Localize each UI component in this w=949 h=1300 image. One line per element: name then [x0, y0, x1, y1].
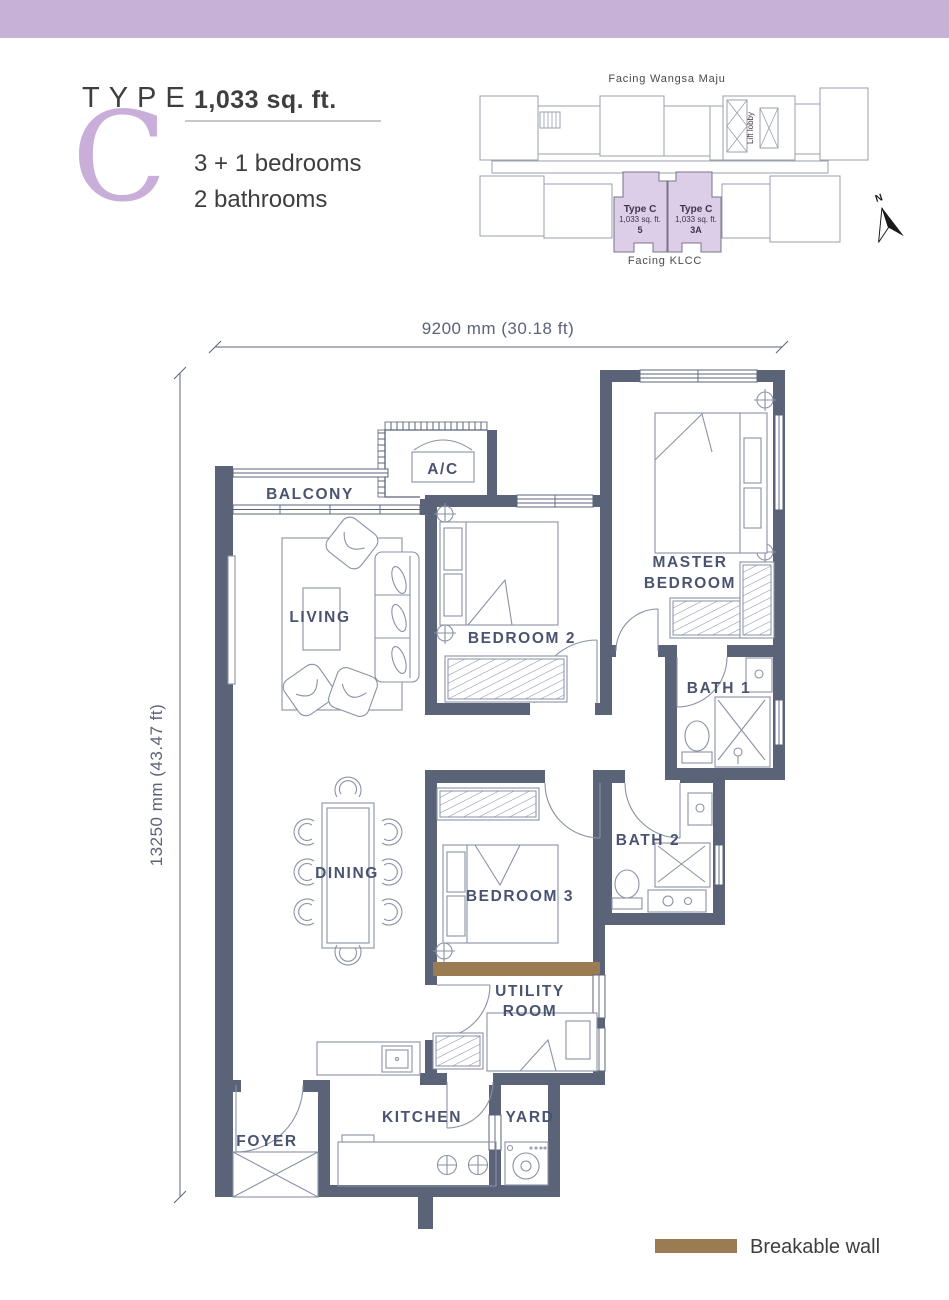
- room-label-dining: DINING: [315, 865, 379, 882]
- armchair: [326, 665, 380, 719]
- wardrobe: [670, 562, 774, 638]
- washing-machine-icon: [505, 1142, 548, 1185]
- sofa: [375, 552, 419, 682]
- legend-breakable-wall-label: Breakable wall: [750, 1236, 880, 1258]
- entrance-mat: [233, 1152, 318, 1197]
- bed-double: [440, 522, 558, 625]
- stove-icon: [437, 1155, 488, 1175]
- dining-chair: [382, 899, 402, 925]
- utility-furniture: [433, 1013, 597, 1071]
- north-label: N: [874, 192, 884, 205]
- wardrobe: [433, 1033, 483, 1069]
- bedroom3-door: [545, 783, 600, 838]
- bath1-furniture: [682, 658, 772, 767]
- plan-canvas: Facing Wangsa Maju Facing KLCC: [0, 0, 949, 1300]
- shower-icon: [715, 697, 770, 767]
- column-icon: [754, 389, 776, 411]
- width-dimension: 9200 mm (30.18 ft): [422, 319, 575, 338]
- room-label-utility-2: ROOM: [503, 1003, 558, 1020]
- facing-bottom-label: Facing KLCC: [628, 255, 702, 267]
- dining-chair: [382, 819, 402, 845]
- unit3a-number: 3A: [690, 225, 702, 235]
- dining-chair: [294, 819, 314, 845]
- unit3a-name: Type C: [680, 204, 713, 215]
- height-dimension: 13250 mm (43.47 ft): [147, 704, 166, 867]
- key-plan: Facing Wangsa Maju Facing KLCC: [480, 73, 904, 267]
- sink-icon: [688, 793, 712, 825]
- room-label-bedroom2: BEDROOM 2: [468, 630, 576, 647]
- unit3a-area: 1,033 sq. ft.: [675, 215, 717, 224]
- bed-single: [487, 1013, 597, 1071]
- room-label-master-2: BEDROOM: [644, 575, 736, 592]
- room-label-utility-1: UTILITY: [495, 983, 565, 1000]
- dining-chair: [335, 777, 361, 797]
- yard-furniture: [505, 1142, 548, 1185]
- bed-king: [655, 413, 767, 553]
- bedroom3-furniture: [437, 788, 558, 943]
- room-label-bath1: BATH 1: [687, 680, 751, 697]
- room-label-foyer: FOYER: [236, 1133, 297, 1150]
- breakable-wall-swatch: [655, 1239, 737, 1253]
- facing-top-label: Facing Wangsa Maju: [608, 73, 725, 85]
- ac-ledge: A/C: [378, 422, 487, 497]
- room-label-bath2: BATH 2: [616, 832, 680, 849]
- legend: Breakable wall: [655, 1236, 880, 1258]
- wardrobe: [445, 656, 567, 702]
- stairs-icon: [540, 112, 560, 128]
- room-label-balcony: BALCONY: [266, 486, 354, 503]
- north-arrow-icon: N: [864, 190, 904, 245]
- kitchen-sink-icon: [382, 1046, 412, 1072]
- floor-plan: 9200 mm (30.18 ft) 13250 mm (43.47 ft): [147, 319, 788, 1229]
- room-label-yard: YARD: [506, 1109, 555, 1126]
- bath2-furniture: [612, 793, 712, 912]
- keyplan-lower-row: Type C 1,033 sq. ft. 5 Type C 1,033 sq. …: [480, 172, 840, 252]
- bedroom2-furniture: [440, 522, 567, 702]
- unit5-number: 5: [637, 225, 642, 235]
- utility-door: [437, 985, 490, 1038]
- master-furniture: [655, 413, 774, 638]
- cabinet-handle: [342, 1135, 374, 1142]
- vanity-counter: [648, 890, 706, 912]
- tv-console: [228, 556, 235, 684]
- dining-chair: [294, 899, 314, 925]
- room-label-kitchen: KITCHEN: [382, 1109, 462, 1126]
- room-label-bedroom3: BEDROOM 3: [466, 888, 574, 905]
- dining-chair: [382, 859, 402, 885]
- breakable-wall-segment: [433, 962, 600, 976]
- lift-lobby-label: Lift lobby: [746, 112, 755, 144]
- shower-icon: [655, 843, 710, 887]
- dining-chair: [294, 859, 314, 885]
- master-door: [616, 609, 658, 651]
- wardrobe: [437, 788, 539, 820]
- unit5-name: Type C: [624, 204, 657, 215]
- kitchen-counter-bottom: [338, 1142, 496, 1186]
- foyer-furniture: [233, 1152, 318, 1197]
- toilet-icon: [682, 721, 712, 763]
- room-label-master-1: MASTER: [652, 554, 727, 571]
- room-label-ac: A/C: [427, 461, 459, 478]
- room-label-living: LIVING: [289, 609, 350, 626]
- toilet-icon: [612, 870, 642, 909]
- armchair: [323, 514, 382, 573]
- bath2-door: [625, 783, 680, 838]
- unit5-area: 1,033 sq. ft.: [619, 215, 661, 224]
- keyplan-upper-row: Lift lobby: [480, 88, 868, 173]
